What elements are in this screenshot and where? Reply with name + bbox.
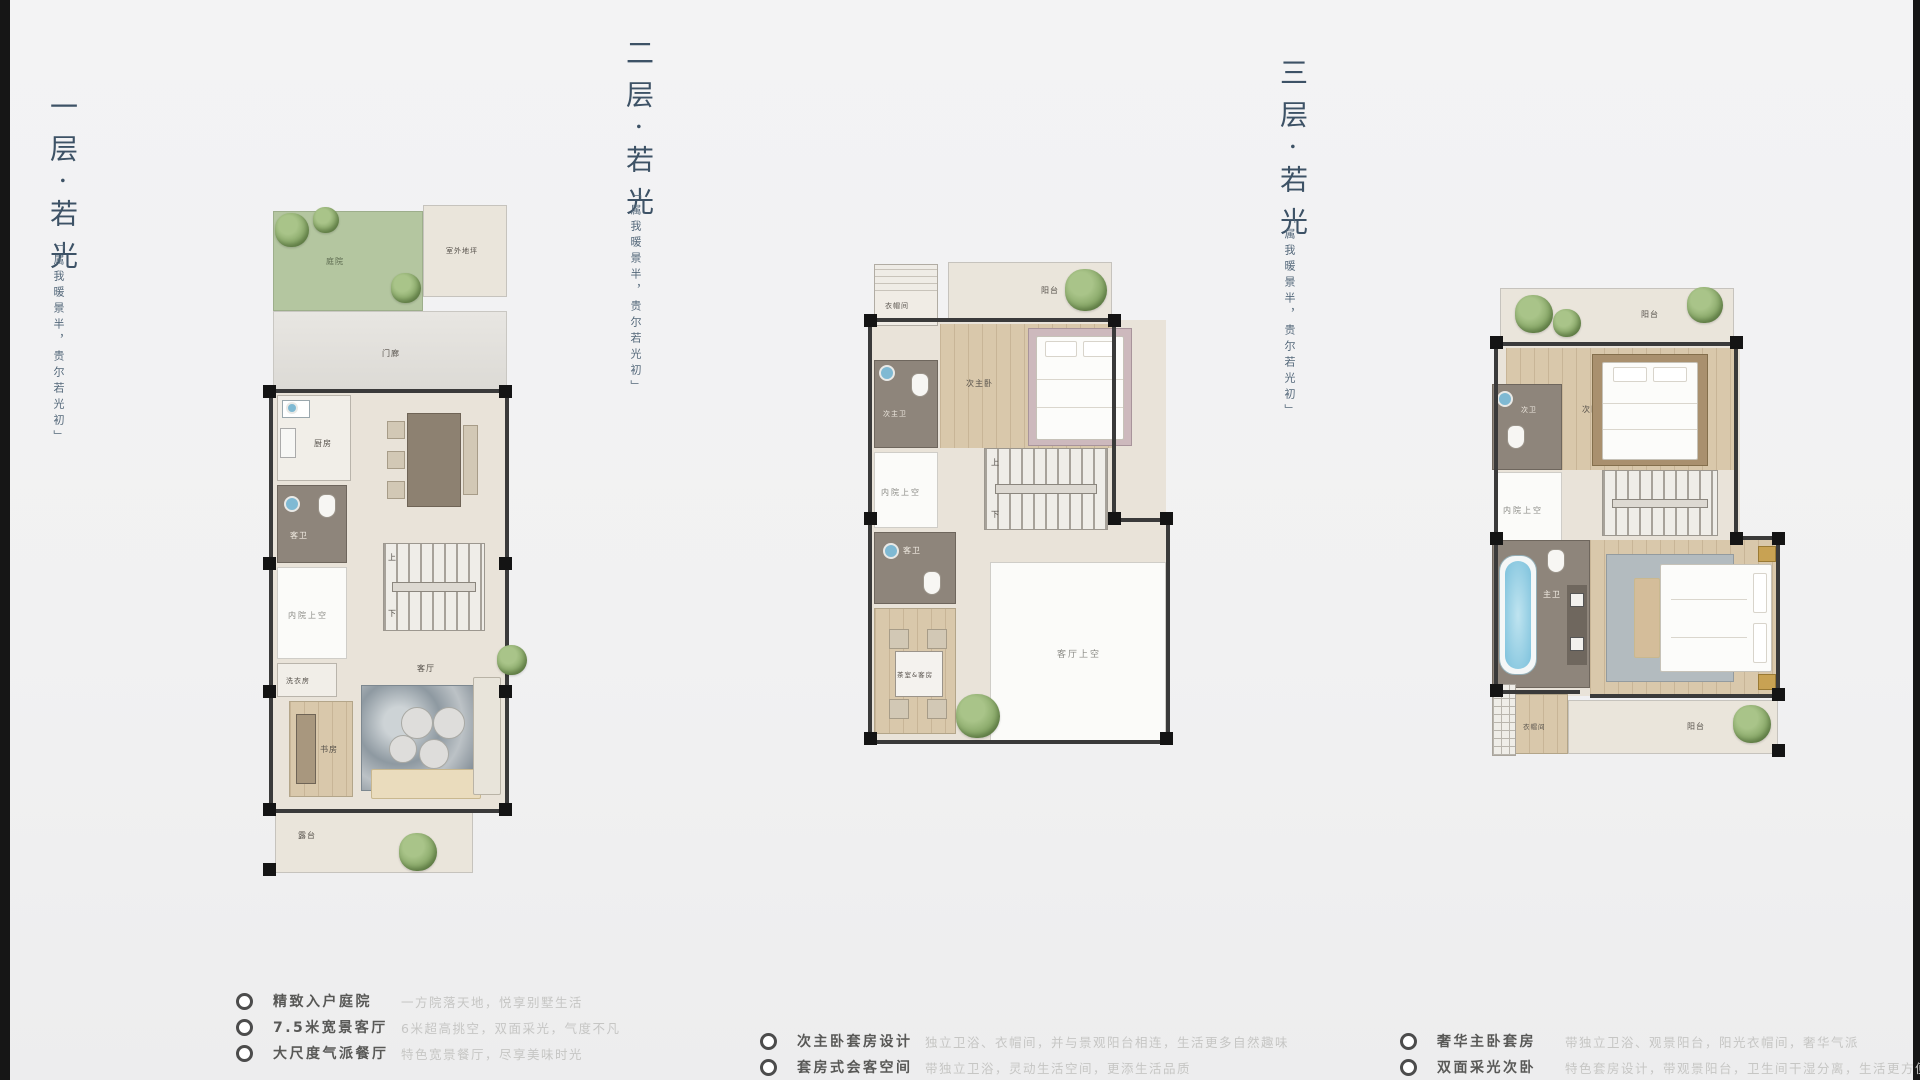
- pillar: [1730, 532, 1743, 545]
- feature-item: 奢华主卧套房 带独立卫浴、观景阳台，阳光衣帽间，奢华气派: [1400, 1028, 1920, 1054]
- pillar: [864, 314, 877, 327]
- pillow-icon: [1653, 367, 1687, 382]
- chair-icon: [889, 629, 909, 649]
- stove-icon: [280, 428, 296, 458]
- floor2-subtitle: 「属我暖景半，贵尔若光初」: [627, 188, 643, 396]
- stairs-area: 上 下: [984, 448, 1108, 530]
- feature-label: 大尺度气派餐厅: [273, 1043, 401, 1063]
- pillar: [263, 385, 276, 398]
- feature-label: 套房式会客空间: [797, 1057, 925, 1077]
- feature-item: 双面采光次卧 特色套房设计，带观景阳台，卫生间干湿分离，生活更方便: [1400, 1054, 1920, 1080]
- sink-icon: [879, 365, 895, 381]
- brochure-slide: 一层·若光 「属我暖景半，贵尔若光初」 庭院 室外地坪 门廊 厨房 餐厅: [0, 0, 1920, 1080]
- feature-item: 7.5米宽景客厅 6米超高挑空，双面采光，气度不凡: [236, 1014, 620, 1040]
- toilet-icon: [1547, 549, 1565, 573]
- guest-bath-area: 客卫: [277, 485, 347, 563]
- wall: [1494, 342, 1498, 692]
- living-area: 客厅: [353, 655, 503, 811]
- left-edge-bar: [0, 0, 10, 1080]
- pillow-icon: [1045, 341, 1077, 357]
- floor3-features: 奢华主卧套房 带独立卫浴、观景阳台，阳光衣帽间，奢华气派 双面采光次卧 特色套房…: [1400, 1028, 1920, 1080]
- tree-icon: [1553, 309, 1581, 337]
- balcony-bottom-area: 阳台: [1568, 700, 1778, 754]
- pillar: [1490, 684, 1503, 697]
- floor1-features: 精致入户庭院 一方院落天地，悦享别墅生活 7.5米宽景客厅 6米超高挑空，双面采…: [236, 988, 620, 1066]
- wall: [1590, 694, 1780, 698]
- feature-label: 精致入户庭院: [273, 991, 401, 1011]
- master-bedroom-area: 主卧室: [1590, 540, 1778, 694]
- wall: [505, 389, 509, 811]
- tree-icon: [1687, 287, 1723, 323]
- right-edge-bar: [1913, 0, 1920, 1080]
- tree-icon: [1065, 269, 1107, 311]
- courtyard-void-area: 内院上空: [1496, 472, 1562, 542]
- wall: [271, 809, 509, 813]
- sink-icon: [883, 543, 899, 559]
- pillar: [499, 803, 512, 816]
- pillar: [864, 512, 877, 525]
- living-void-area: 客厅上空: [990, 562, 1166, 742]
- pillar: [499, 685, 512, 698]
- terrace-label: 露台: [298, 830, 316, 841]
- bed-icon: [1660, 564, 1772, 672]
- desk-icon: [296, 714, 316, 784]
- floor2-features: 次主卧套房设计 独立卫浴、衣帽间，并与景观阳台相连，生活更多自然趣味 套房式会客…: [760, 1028, 1289, 1080]
- chair-icon: [387, 481, 405, 499]
- bullet-ring-icon: [236, 1045, 253, 1062]
- bullet-ring-icon: [760, 1059, 777, 1076]
- basin-icon: [1570, 637, 1584, 651]
- pillow-icon: [1083, 341, 1115, 357]
- quilt-fold: [1603, 403, 1697, 404]
- feature-label: 次主卧套房设计: [797, 1031, 925, 1051]
- jr-master-label: 次主卧: [966, 378, 993, 389]
- pillar: [1772, 744, 1785, 757]
- bullet-ring-icon: [1400, 1033, 1417, 1050]
- chair-icon: [387, 451, 405, 469]
- feature-label: 双面采光次卧: [1437, 1057, 1565, 1077]
- guest-bath-area: 客卫: [874, 532, 956, 604]
- wall: [1112, 318, 1116, 522]
- sink-icon: [1497, 391, 1513, 407]
- chair-icon: [927, 699, 947, 719]
- plant-icon: [497, 645, 527, 675]
- tea-guest-area: 茶室&客房: [874, 608, 956, 734]
- laundry-label: 洗衣房: [286, 676, 310, 686]
- floor1-plan: 庭院 室外地坪 门廊 厨房 餐厅 客卫: [265, 205, 557, 873]
- sink-icon: [284, 496, 300, 512]
- wall: [868, 740, 1170, 744]
- wall: [868, 318, 872, 742]
- tree-icon: [956, 694, 1000, 738]
- bath2-area: 次卫: [1492, 384, 1562, 470]
- courtyard-void-label: 内院上空: [288, 610, 328, 621]
- feature-desc: 特色宽景餐厅，尽享美味时光: [401, 1044, 583, 1063]
- guest-bath-label: 客卫: [290, 530, 308, 541]
- quilt-fold: [1037, 379, 1123, 380]
- quilt-fold: [1671, 637, 1747, 638]
- wall: [1166, 518, 1170, 744]
- wall: [269, 389, 273, 813]
- toilet-icon: [911, 373, 929, 397]
- study-label: 书房: [320, 744, 338, 755]
- pillar: [1160, 512, 1173, 525]
- wall: [870, 318, 1116, 322]
- round-table-icon: [401, 707, 433, 739]
- stair-up-label: 上: [991, 457, 999, 468]
- bed-icon: [1036, 336, 1124, 440]
- feature-label: 奢华主卧套房: [1437, 1031, 1565, 1051]
- bench-icon: [463, 425, 478, 495]
- bullet-ring-icon: [236, 993, 253, 1010]
- feature-label: 7.5米宽景客厅: [273, 1017, 401, 1037]
- feature-desc: 一方院落天地，悦享别墅生活: [401, 992, 583, 1011]
- toilet-icon: [923, 571, 941, 595]
- chaise-icon: [473, 677, 501, 795]
- kitchen-area: 厨房: [277, 395, 351, 481]
- pillar: [499, 557, 512, 570]
- bath2-label: 次卫: [1521, 405, 1537, 415]
- pillar: [1490, 336, 1503, 349]
- feature-desc: 独立卫浴、衣帽间，并与景观阳台相连，生活更多自然趣味: [925, 1032, 1289, 1051]
- dining-table-icon: [407, 413, 461, 507]
- stair-down-label: 下: [991, 509, 999, 520]
- outdoor-slab-label: 室外地坪: [446, 246, 478, 256]
- courtyard-void-label: 内院上空: [881, 487, 921, 498]
- study-area: 书房: [289, 701, 353, 797]
- wall: [1496, 342, 1738, 346]
- quilt-fold: [1671, 599, 1747, 600]
- balcony-label: 阳台: [1041, 285, 1059, 296]
- vanity-icon: [1567, 585, 1587, 665]
- garden-label: 庭院: [326, 256, 344, 267]
- courtyard-void-label: 内院上空: [1503, 505, 1543, 516]
- basin-icon: [1570, 593, 1584, 607]
- wall: [1734, 342, 1738, 538]
- balcony-bottom-label: 阳台: [1687, 721, 1705, 732]
- nightstand-icon: [1758, 546, 1776, 562]
- closet-label: 衣帽间: [885, 301, 909, 311]
- living-label: 客厅: [417, 663, 435, 674]
- feature-desc: 带独立卫浴，灵动生活空间，更添生活品质: [925, 1058, 1191, 1077]
- floor3-plan: 阳台 次卧 次卫 内院上空 主卫: [1490, 288, 1782, 766]
- jr-master-area: 次主卧: [940, 324, 1112, 448]
- feature-item: 精致入户庭院 一方院落天地，悦享别墅生活: [236, 988, 620, 1014]
- pillar: [1490, 532, 1503, 545]
- tree-icon: [1515, 295, 1553, 333]
- chair-icon: [889, 699, 909, 719]
- pillow-icon: [1753, 623, 1767, 663]
- toilet-icon: [1507, 425, 1525, 449]
- wall: [271, 389, 509, 393]
- bullet-ring-icon: [236, 1019, 253, 1036]
- pillar: [1772, 688, 1785, 701]
- pillar: [1108, 314, 1121, 327]
- tree-icon: [1733, 705, 1771, 743]
- wall: [1776, 536, 1780, 698]
- pillar: [1772, 532, 1785, 545]
- bed-icon: [1602, 362, 1698, 460]
- jr-master-bath-label: 次主卫: [883, 409, 907, 419]
- bullet-ring-icon: [760, 1033, 777, 1050]
- bathtub-water: [1505, 561, 1531, 669]
- sofa-icon: [371, 769, 481, 799]
- bullet-ring-icon: [1400, 1059, 1417, 1076]
- floor2-plan: 衣帽间 阳台 次主卧 次主卫 内院上空 上 下: [860, 262, 1172, 748]
- master-bath-area: 主卫: [1492, 540, 1590, 688]
- chair-icon: [927, 629, 947, 649]
- quilt-fold: [1037, 407, 1123, 408]
- feature-desc: 6米超高挑空，双面采光，气度不凡: [401, 1018, 620, 1037]
- kitchen-label: 厨房: [314, 438, 332, 449]
- stair-rail: [995, 484, 1098, 494]
- pillar: [263, 863, 276, 876]
- guest-bath-label: 客卫: [903, 545, 921, 556]
- feature-item: 大尺度气派餐厅 特色宽景餐厅，尽享美味时光: [236, 1040, 620, 1066]
- closet-area: 衣帽间: [874, 264, 938, 326]
- courtyard-void-area: 内院上空: [277, 567, 347, 659]
- faucet-icon: [286, 402, 298, 414]
- pillar: [263, 685, 276, 698]
- stair-down-label: 下: [388, 608, 396, 619]
- outdoor-slab-area: 室外地坪: [423, 205, 507, 297]
- porch-area: 门廊: [273, 311, 507, 391]
- pillow-icon: [1753, 573, 1767, 613]
- closet-hatch: [875, 265, 937, 291]
- bathtub-icon: [1499, 555, 1537, 675]
- toilet-icon: [318, 494, 336, 518]
- tree-icon: [313, 207, 339, 233]
- feature-item: 套房式会客空间 带独立卫浴，灵动生活空间，更添生活品质: [760, 1054, 1289, 1080]
- closet-label: 衣帽间: [1523, 721, 1546, 731]
- pillar: [1160, 732, 1173, 745]
- floor3-subtitle: 「属我暖景半，贵尔若光初」: [1281, 212, 1297, 420]
- tree-icon: [275, 213, 309, 247]
- laundry-area: 洗衣房: [277, 663, 337, 697]
- pillar: [1730, 336, 1743, 349]
- courtyard-void-area: 内院上空: [874, 452, 938, 528]
- pillow-icon: [1613, 367, 1647, 382]
- pillar: [263, 557, 276, 570]
- round-table-icon: [389, 735, 417, 763]
- floor1-subtitle: 「属我暖景半，贵尔若光初」: [50, 238, 66, 446]
- pillar: [864, 732, 877, 745]
- feature-desc: 特色套房设计，带观景阳台，卫生间干湿分离，生活更方便: [1565, 1058, 1920, 1077]
- porch-label: 门廊: [382, 348, 400, 359]
- chair-icon: [387, 421, 405, 439]
- pillar: [263, 803, 276, 816]
- master-bath-label: 主卫: [1543, 589, 1561, 600]
- balcony-top-area: 阳台: [1500, 288, 1734, 344]
- balcony-area: 阳台: [948, 262, 1112, 320]
- quilt-fold: [1603, 429, 1697, 430]
- balcony-top-label: 阳台: [1641, 309, 1659, 320]
- feature-desc: 带独立卫浴、观景阳台，阳光衣帽间，奢华气派: [1565, 1032, 1859, 1051]
- bed-bench-icon: [1634, 578, 1660, 658]
- tree-icon: [391, 273, 421, 303]
- dining-area: 餐厅: [359, 395, 503, 527]
- pillar: [1108, 512, 1121, 525]
- stair-rail: [1612, 499, 1708, 507]
- jr-master-bath-area: 次主卫: [874, 360, 938, 448]
- wall: [1494, 690, 1580, 694]
- closet-area: 衣帽间: [1514, 694, 1568, 754]
- tea-guest-label: 茶室&客房: [897, 669, 933, 679]
- living-void-label: 客厅上空: [1057, 647, 1101, 660]
- stair-up-label: 上: [388, 552, 396, 563]
- tree-icon: [399, 833, 437, 871]
- feature-item: 次主卧套房设计 独立卫浴、衣帽间，并与景观阳台相连，生活更多自然趣味: [760, 1028, 1289, 1054]
- stairs-area: 上 下: [383, 543, 485, 631]
- stairs-area: [1602, 470, 1718, 536]
- round-table-icon: [419, 739, 449, 769]
- round-table-icon: [433, 707, 465, 739]
- pillar: [499, 385, 512, 398]
- stair-rail: [392, 582, 476, 593]
- terrace-area: 露台: [275, 811, 473, 873]
